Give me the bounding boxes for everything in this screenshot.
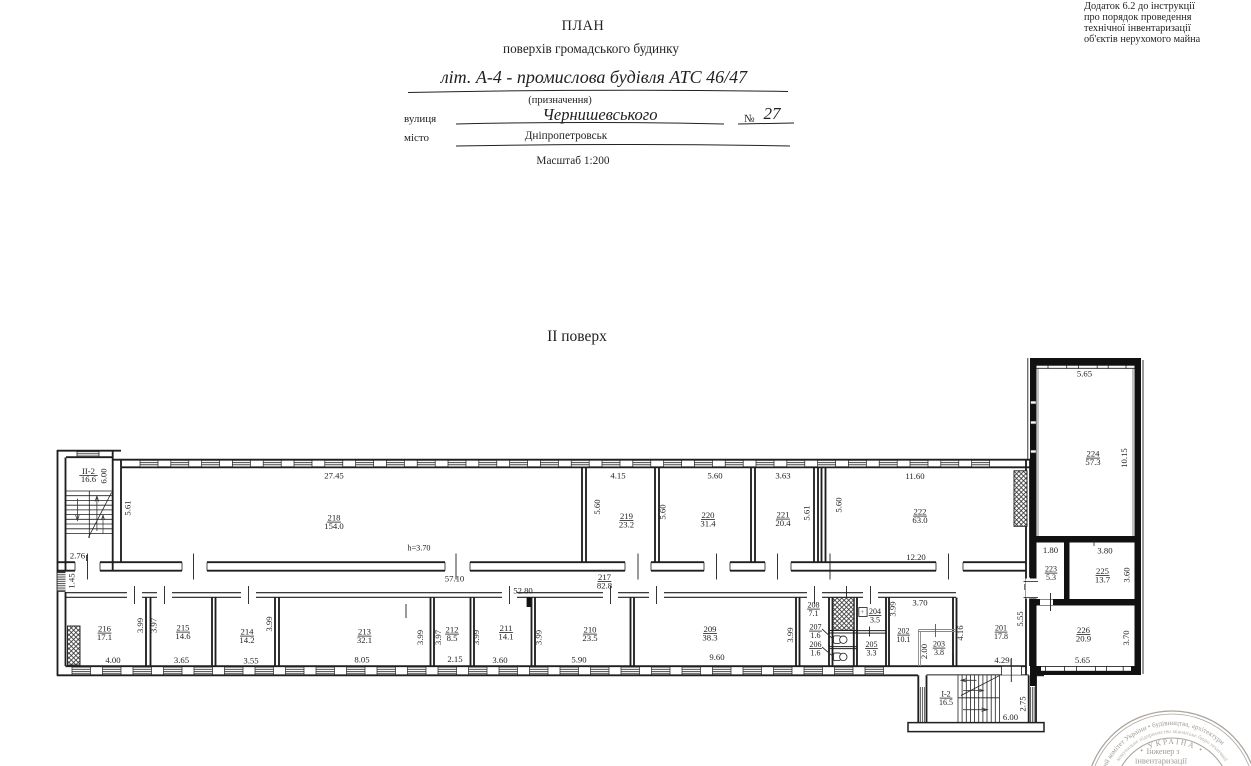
svg-text:57.3: 57.3 — [1085, 457, 1100, 467]
svg-text:14.2: 14.2 — [239, 635, 254, 645]
svg-text:5.55: 5.55 — [1015, 611, 1025, 626]
svg-text:9.60: 9.60 — [709, 652, 725, 662]
svg-text:3.99: 3.99 — [135, 618, 145, 633]
svg-text:5.65: 5.65 — [1075, 655, 1090, 665]
svg-text:32.1: 32.1 — [357, 635, 372, 645]
svg-text:літ. А-4 - промислова будівля: літ. А-4 - промислова будівля АТС 46/47 — [440, 67, 748, 87]
svg-text:1.45: 1.45 — [67, 573, 77, 588]
svg-text:3.97: 3.97 — [149, 617, 159, 633]
svg-text:2.76: 2.76 — [70, 551, 86, 561]
svg-text:57.10: 57.10 — [445, 574, 465, 584]
svg-text:3.99: 3.99 — [471, 630, 481, 645]
svg-text:17.1: 17.1 — [97, 632, 112, 642]
svg-text:10.1: 10.1 — [897, 635, 911, 644]
svg-text:Масштаб 1:200: Масштаб 1:200 — [536, 155, 610, 167]
svg-text:5.61: 5.61 — [802, 505, 812, 520]
svg-text:20.4: 20.4 — [775, 518, 791, 528]
svg-text:82.8: 82.8 — [597, 580, 613, 590]
svg-text:23.2: 23.2 — [619, 519, 634, 529]
svg-text:5.3: 5.3 — [1046, 573, 1056, 582]
svg-text:20.9: 20.9 — [1076, 633, 1091, 643]
svg-text:5.61: 5.61 — [123, 500, 133, 515]
svg-text:ІІ поверх: ІІ поверх — [547, 328, 607, 345]
svg-text:11.60: 11.60 — [905, 471, 925, 481]
svg-text:16.5: 16.5 — [939, 698, 953, 707]
svg-text:про порядок проведення: про порядок проведення — [1084, 12, 1192, 23]
svg-text:12.20: 12.20 — [906, 552, 926, 562]
svg-text:Додаток 6.2 до інструкції: Додаток 6.2 до інструкції — [1084, 1, 1195, 12]
svg-text:3.99: 3.99 — [785, 627, 795, 642]
svg-text:3.5: 3.5 — [870, 615, 880, 624]
svg-text:3.55: 3.55 — [243, 656, 258, 666]
svg-text:+: + — [860, 609, 864, 616]
svg-text:7.1: 7.1 — [809, 609, 819, 618]
svg-text:10.15: 10.15 — [1119, 448, 1129, 468]
svg-text:6.00: 6.00 — [1003, 712, 1019, 722]
svg-text:27.45: 27.45 — [324, 470, 344, 480]
svg-text:4.29: 4.29 — [994, 655, 1009, 665]
svg-text:3.99: 3.99 — [415, 630, 425, 645]
svg-text:27: 27 — [764, 104, 783, 123]
svg-text:3.70: 3.70 — [1121, 630, 1131, 646]
svg-text:5.60: 5.60 — [707, 470, 723, 480]
svg-text:ПЛАН: ПЛАН — [562, 18, 605, 34]
svg-text:поверхів громадського будинку: поверхів громадського будинку — [503, 41, 679, 56]
svg-text:3.97: 3.97 — [433, 629, 443, 645]
svg-text:1.6: 1.6 — [811, 631, 821, 640]
svg-text:3.60: 3.60 — [1122, 567, 1132, 583]
svg-text:інвентаризації: інвентаризації — [1135, 756, 1188, 766]
svg-text:h=3.70: h=3.70 — [407, 544, 430, 553]
svg-text:3.63: 3.63 — [775, 470, 790, 480]
svg-text:13.7: 13.7 — [1095, 574, 1111, 584]
svg-text:3.70: 3.70 — [912, 598, 928, 608]
svg-text:4.00: 4.00 — [105, 655, 121, 665]
svg-text:63.0: 63.0 — [912, 515, 928, 525]
svg-text:31.4: 31.4 — [700, 518, 716, 528]
svg-text:3.80: 3.80 — [1097, 546, 1113, 556]
svg-text:місто: місто — [404, 132, 430, 144]
svg-text:об'єктів нерухомого майна: об'єктів нерухомого майна — [1084, 34, 1201, 45]
svg-text:8.05: 8.05 — [354, 655, 369, 665]
svg-text:3.99: 3.99 — [534, 630, 544, 645]
svg-text:3.65: 3.65 — [174, 655, 189, 665]
svg-text:5.60: 5.60 — [592, 499, 602, 515]
svg-text:23.5: 23.5 — [582, 633, 597, 643]
svg-text:8.5: 8.5 — [447, 633, 458, 643]
svg-text:вулиця: вулиця — [404, 113, 436, 125]
svg-text:2.15: 2.15 — [447, 654, 462, 664]
svg-text:52.80: 52.80 — [513, 586, 533, 596]
svg-text:5.60: 5.60 — [658, 504, 668, 520]
svg-text:4.15: 4.15 — [610, 470, 625, 480]
svg-text:14.6: 14.6 — [175, 631, 191, 641]
svg-text:16.6: 16.6 — [81, 474, 97, 484]
svg-text:Дніпропетровськ: Дніпропетровськ — [525, 130, 608, 142]
svg-text:14.1: 14.1 — [498, 631, 513, 641]
svg-text:Чернишевського: Чернишевського — [543, 105, 658, 124]
svg-text:1.80: 1.80 — [1043, 545, 1059, 555]
svg-text:4.16: 4.16 — [955, 625, 965, 641]
svg-text:3.60: 3.60 — [492, 655, 508, 665]
svg-text:5.60: 5.60 — [834, 497, 844, 513]
svg-text:технічної інвентаризації: технічної інвентаризації — [1084, 23, 1191, 34]
svg-text:3.99: 3.99 — [264, 616, 274, 631]
svg-text:5.65: 5.65 — [1077, 369, 1092, 379]
svg-text:№: № — [744, 113, 755, 125]
svg-text:5.90: 5.90 — [571, 655, 587, 665]
svg-text:154.0: 154.0 — [324, 521, 344, 531]
svg-text:6.00: 6.00 — [98, 468, 108, 484]
svg-text:1.6: 1.6 — [811, 648, 821, 657]
svg-text:3.99: 3.99 — [888, 601, 898, 616]
svg-text:38.3: 38.3 — [702, 632, 717, 642]
svg-text:2.75: 2.75 — [1018, 696, 1028, 711]
svg-text:3.3: 3.3 — [867, 648, 877, 657]
svg-text:2.00: 2.00 — [919, 643, 929, 659]
svg-text:3.8: 3.8 — [934, 648, 944, 657]
svg-text:17.8: 17.8 — [994, 632, 1008, 641]
